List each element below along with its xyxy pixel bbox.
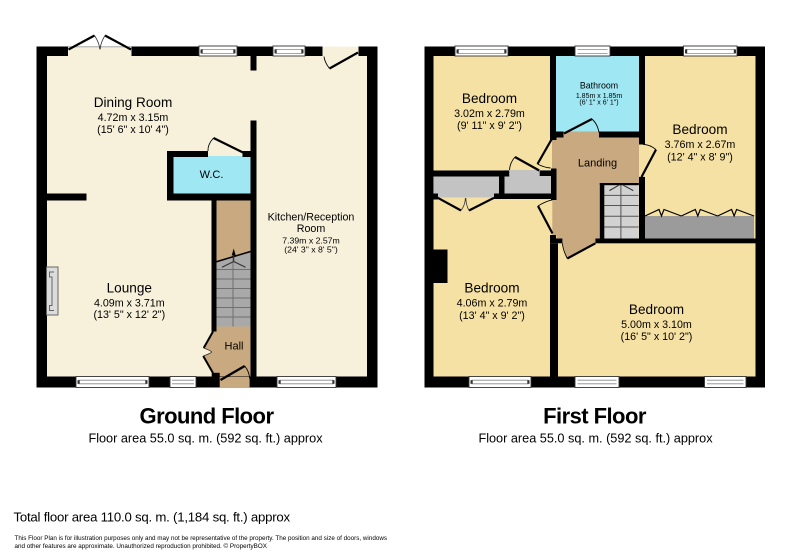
svg-text:This Floor Plan is for illustr: This Floor Plan is for illustration purp… <box>15 535 388 542</box>
svg-text:(16' 5" x 10' 2"): (16' 5" x 10' 2") <box>621 331 693 343</box>
svg-text:(13' 5" x 12' 2"): (13' 5" x 12' 2") <box>93 309 165 321</box>
svg-text:Kitchen/Reception: Kitchen/Reception <box>268 212 355 224</box>
svg-text:(12' 4" x 8' 9"): (12' 4" x 8' 9") <box>667 151 733 163</box>
svg-text:3.02m x 2.79m: 3.02m x 2.79m <box>454 108 525 120</box>
svg-text:Floor area 55.0 sq. m. (592 sq: Floor area 55.0 sq. m. (592 sq. ft.) app… <box>88 432 323 446</box>
svg-text:(6' 1" x 6' 1"): (6' 1" x 6' 1") <box>579 100 618 107</box>
svg-text:Dining Room: Dining Room <box>94 95 173 110</box>
svg-text:Bedroom: Bedroom <box>464 281 519 296</box>
svg-text:Bathroom: Bathroom <box>580 81 618 91</box>
svg-text:5.00m x 3.10m: 5.00m x 3.10m <box>621 319 692 331</box>
svg-text:Room: Room <box>297 223 326 235</box>
svg-text:Bedroom: Bedroom <box>672 122 727 137</box>
svg-text:First Floor: First Floor <box>543 404 647 429</box>
svg-text:4.06m x 2.79m: 4.06m x 2.79m <box>457 298 528 310</box>
svg-text:4.09m x 3.71m: 4.09m x 3.71m <box>94 298 165 310</box>
svg-text:(13' 4" x 9' 2"): (13' 4" x 9' 2") <box>459 310 525 322</box>
svg-text:Landing: Landing <box>578 158 617 170</box>
svg-text:(9' 11" x 9' 2"): (9' 11" x 9' 2") <box>457 120 522 132</box>
svg-text:Total floor area 110.0 sq. m.: Total floor area 110.0 sq. m. (1,184 sq.… <box>14 510 291 525</box>
svg-text:Bedroom: Bedroom <box>629 302 684 317</box>
svg-text:3.76m x 2.67m: 3.76m x 2.67m <box>665 139 736 151</box>
svg-text:Lounge: Lounge <box>107 280 152 295</box>
svg-text:(24' 3" x 8' 5"): (24' 3" x 8' 5") <box>284 245 338 255</box>
svg-text:Floor area 55.0 sq. m. (592 sq: Floor area 55.0 sq. m. (592 sq. ft.) app… <box>478 432 713 446</box>
svg-text:Ground Floor: Ground Floor <box>140 404 275 429</box>
svg-text:(15' 6" x 10' 4"): (15' 6" x 10' 4") <box>97 124 169 136</box>
svg-text:and other features are approxi: and other features are approximate. Unau… <box>15 542 268 550</box>
svg-text:Bedroom: Bedroom <box>462 91 517 106</box>
svg-text:Hall: Hall <box>225 340 244 352</box>
svg-text:W.C.: W.C. <box>200 169 224 181</box>
svg-text:4.72m x 3.15m: 4.72m x 3.15m <box>98 112 169 124</box>
